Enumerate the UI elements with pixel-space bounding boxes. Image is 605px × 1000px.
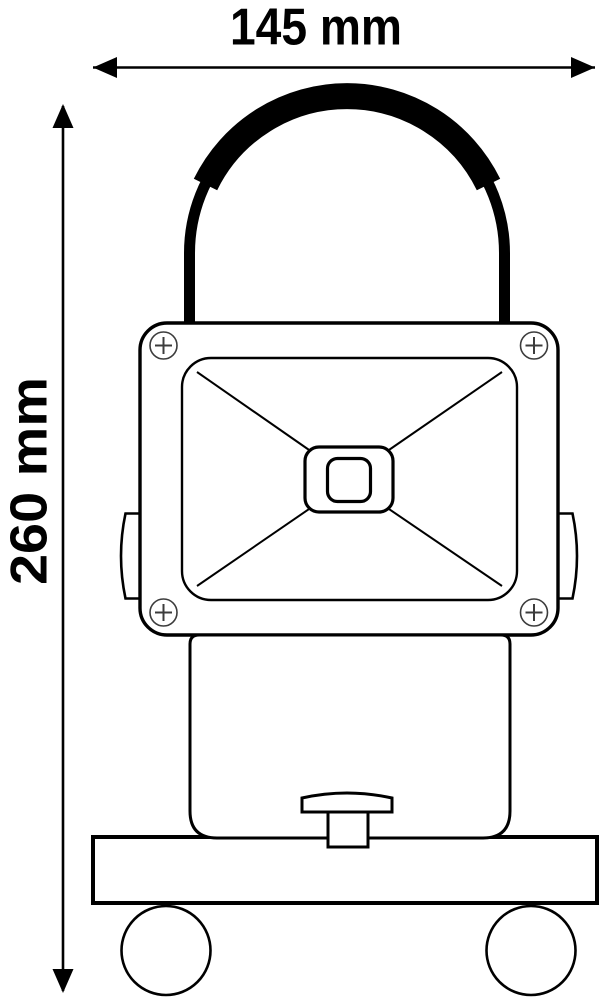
height-dimension-label: 260 mm [1, 377, 59, 585]
mount-tab-left [121, 514, 141, 599]
switch-knob-cap [302, 793, 392, 812]
led-chip-inner [328, 459, 371, 502]
figure-canvas: 145 mm 260 mm [0, 0, 605, 1000]
width-dimension-label: 145 mm [230, 0, 402, 57]
switch-knob-stem [328, 812, 368, 847]
wheel-right [487, 906, 576, 995]
mount-tab-right [557, 514, 577, 599]
wheel-left [122, 906, 211, 995]
worklight-dimension-diagram: 145 mm 260 mm [0, 0, 605, 1000]
